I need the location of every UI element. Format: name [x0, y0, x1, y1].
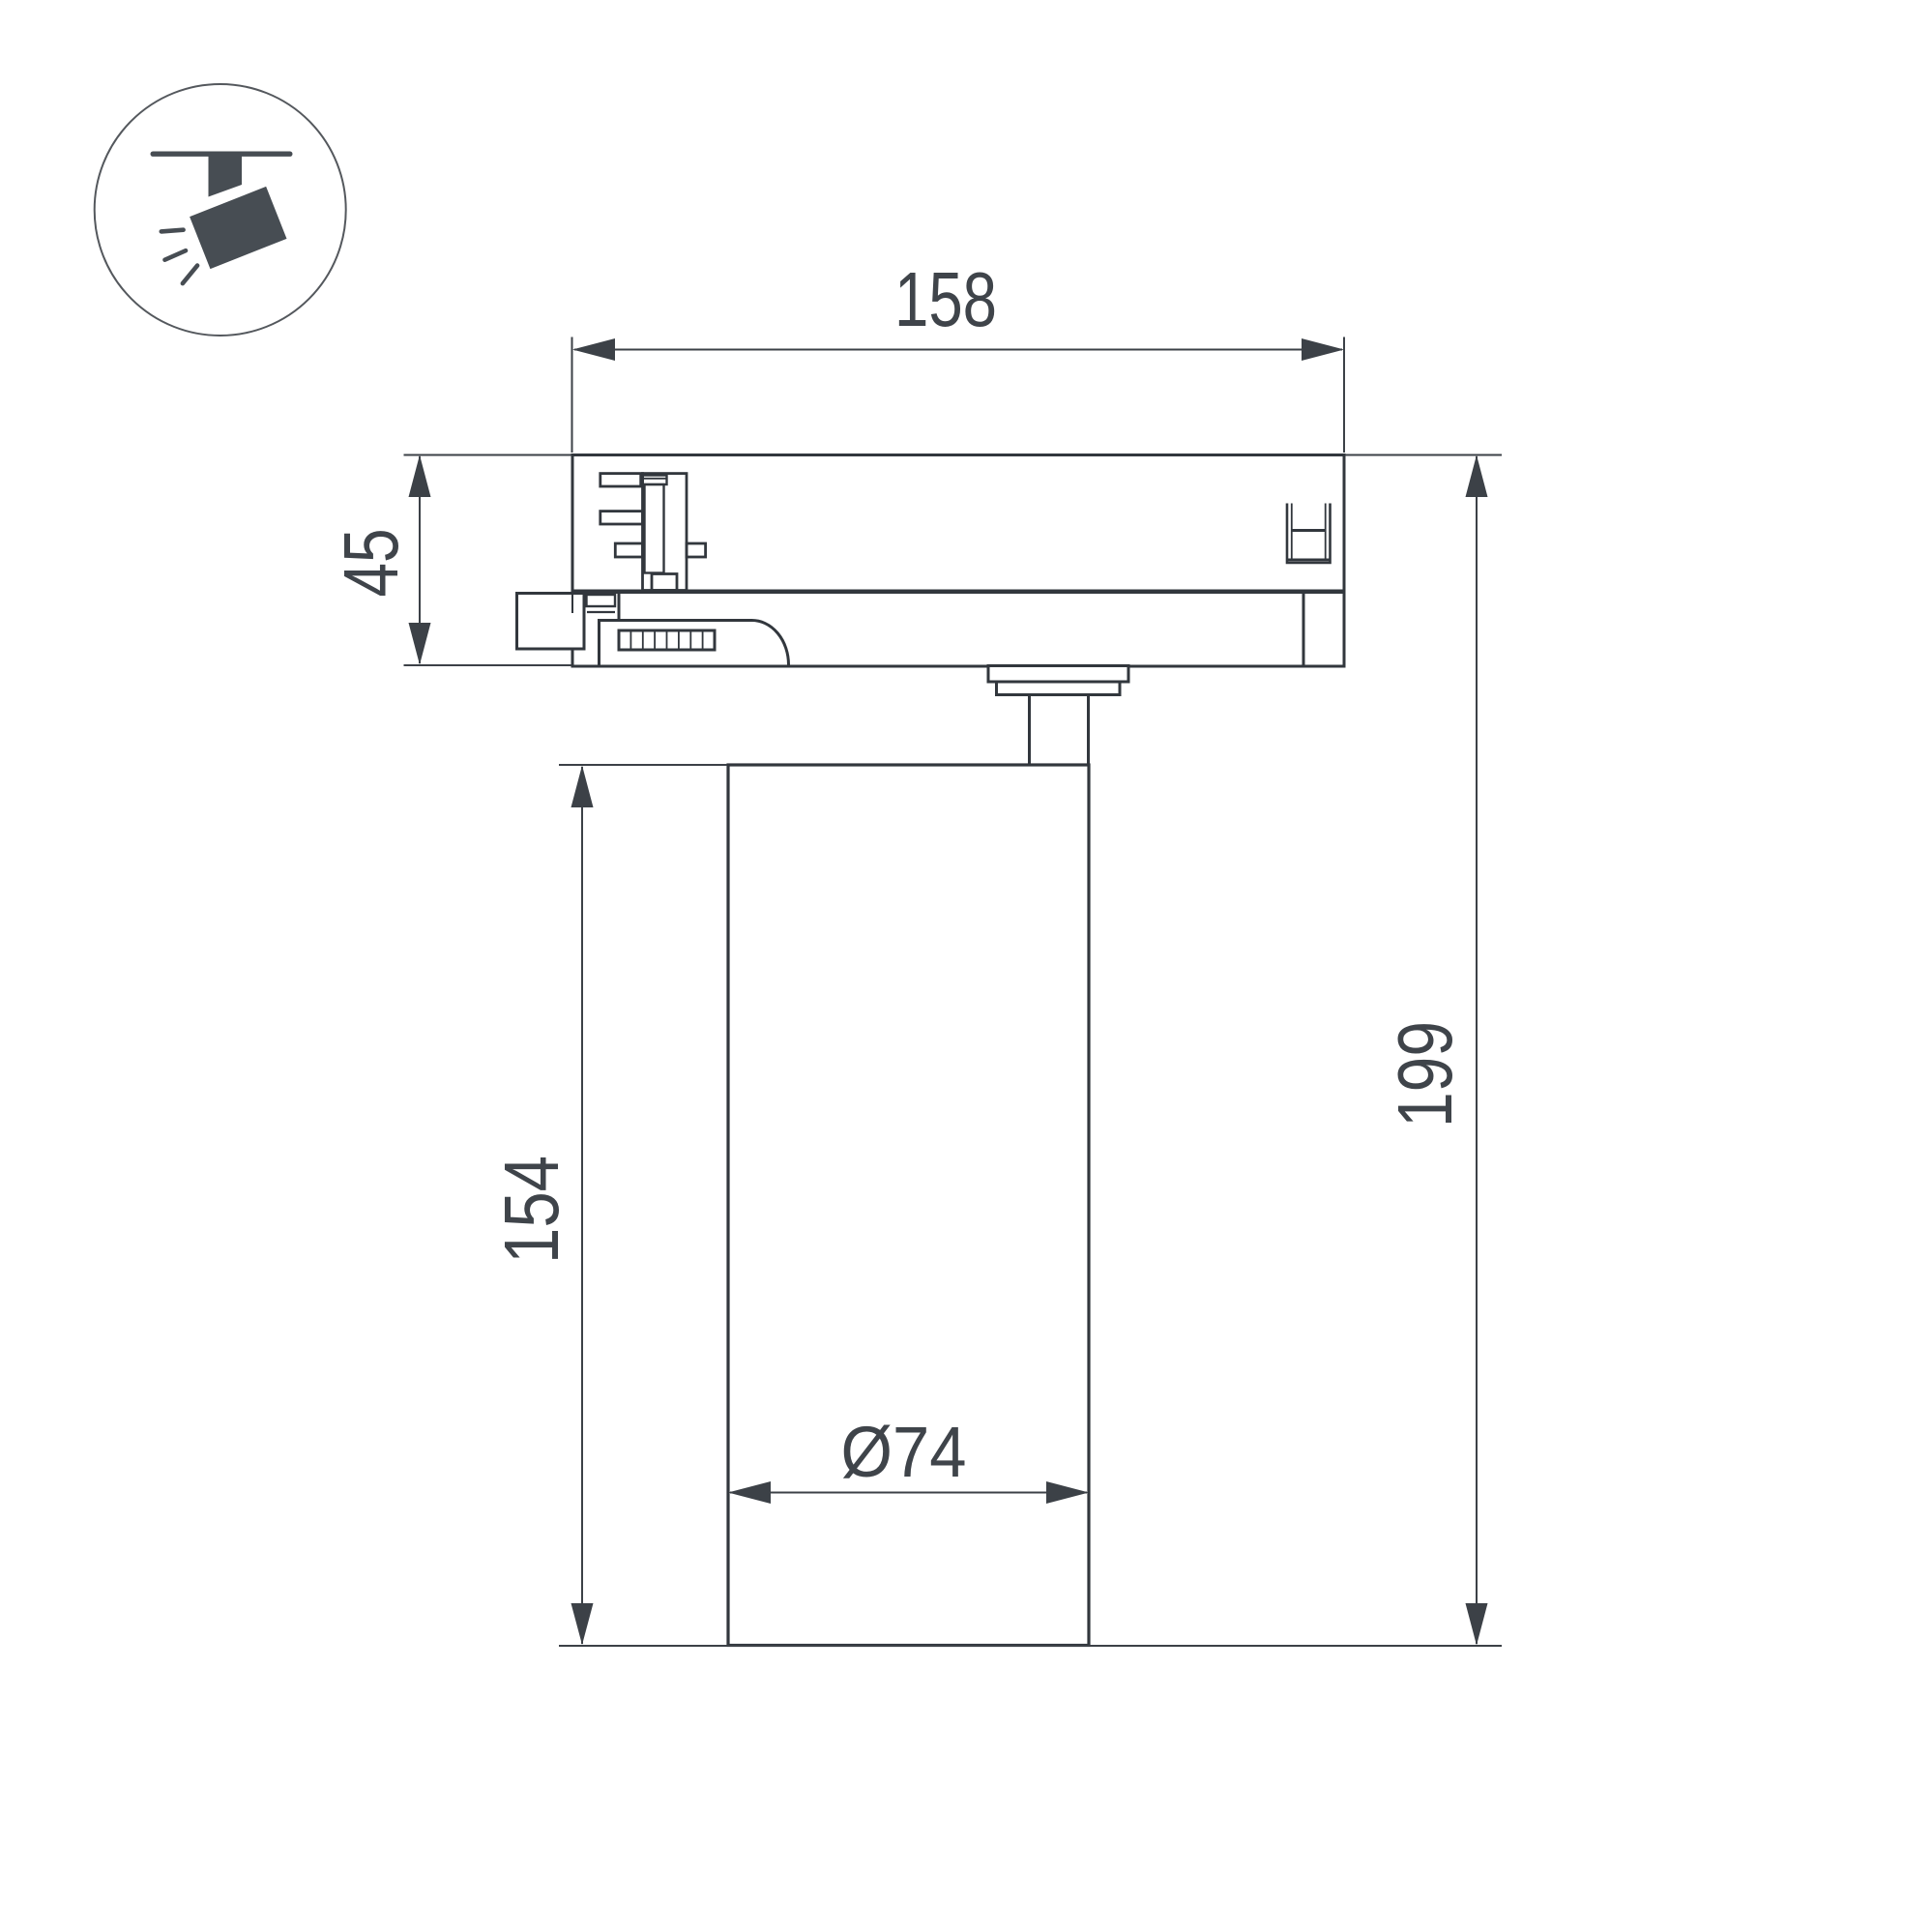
svg-text:158: 158 — [894, 256, 997, 342]
svg-text:199: 199 — [1382, 1021, 1468, 1127]
svg-text:Ø74: Ø74 — [841, 1412, 967, 1492]
svg-text:154: 154 — [488, 1156, 574, 1264]
svg-text:45: 45 — [328, 529, 414, 598]
